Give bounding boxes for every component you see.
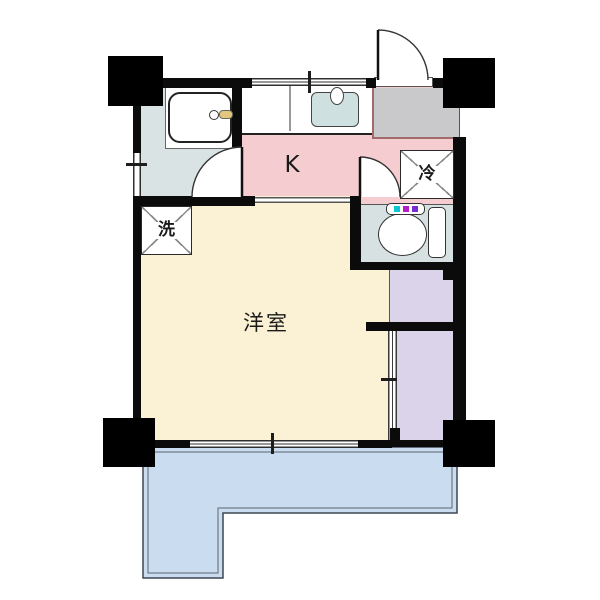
window-bathroom-left (133, 153, 141, 197)
balcony (143, 447, 457, 578)
window-bottom (190, 440, 358, 448)
toilet-bowl (378, 213, 427, 256)
wall-top-left (163, 78, 252, 88)
kitchen-label: K (272, 151, 312, 179)
closet-door-tick (381, 378, 397, 381)
window-top-tick (308, 71, 311, 93)
toilet-button-3 (412, 206, 418, 212)
window-left-tick (126, 163, 147, 166)
entrance-door-arc (378, 30, 428, 80)
entrance-door-swing (378, 30, 428, 80)
counter-divider-line (289, 85, 291, 131)
refrigerator-label: 冷 (417, 166, 438, 184)
wall-top-right (433, 78, 443, 88)
main-room-label: 洋室 (225, 309, 307, 335)
pillar-top-left (108, 56, 163, 106)
toilet-button-2 (403, 206, 409, 212)
refrigerator-space: 冷 (400, 150, 454, 199)
toilet-tank (428, 207, 446, 258)
entrance-threshold (374, 77, 433, 87)
pillar-top-right (443, 58, 495, 108)
wall-closet-divider (366, 322, 466, 331)
wall-toilet-left (350, 196, 361, 270)
pillar-bottom-left (103, 418, 155, 467)
wall-bottom-right (358, 440, 392, 448)
bathtub-faucet (219, 110, 233, 119)
bathtub-knob (209, 110, 219, 120)
wall-top-stub (366, 78, 376, 88)
closet-sliding-door (388, 331, 397, 440)
balcony-inner-rail (148, 452, 452, 573)
washer-space: 洗 (141, 206, 192, 255)
kitchen-mainroom-opening (255, 197, 350, 203)
wall-closet-notch (443, 268, 457, 280)
room-main-b (353, 270, 390, 440)
kitchen-faucet (330, 87, 344, 105)
washer-label: 洗 (156, 222, 177, 240)
toilet-button-1 (394, 206, 400, 212)
window-bottom-tick (271, 433, 274, 454)
wall-mainroom-top (133, 196, 255, 206)
toilet-control-panel (386, 203, 425, 215)
pillar-bottom-right (443, 420, 495, 467)
floor-plan: 洗 冷 K 洋室 (0, 0, 600, 600)
wall-bath-kitchen (232, 88, 242, 147)
wall-closet-bottom (392, 440, 443, 447)
wall-left-lower (133, 197, 141, 418)
